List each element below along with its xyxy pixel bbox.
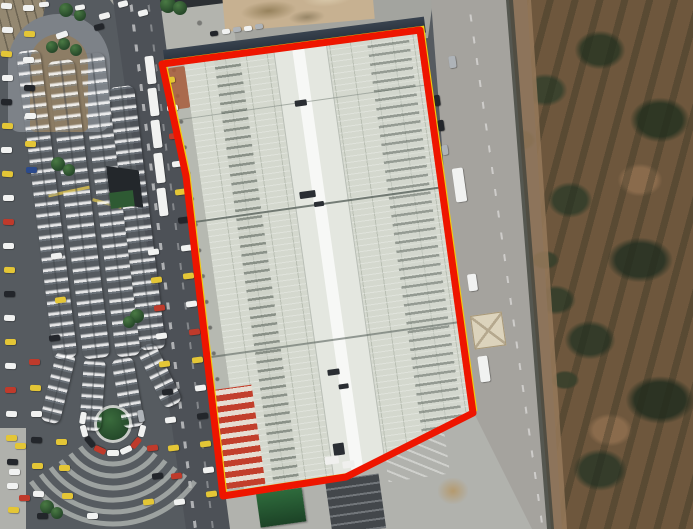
satellite-map-canvas (0, 0, 693, 529)
annotation-layer (0, 0, 693, 529)
boundary-polygon[interactable] (162, 30, 473, 496)
